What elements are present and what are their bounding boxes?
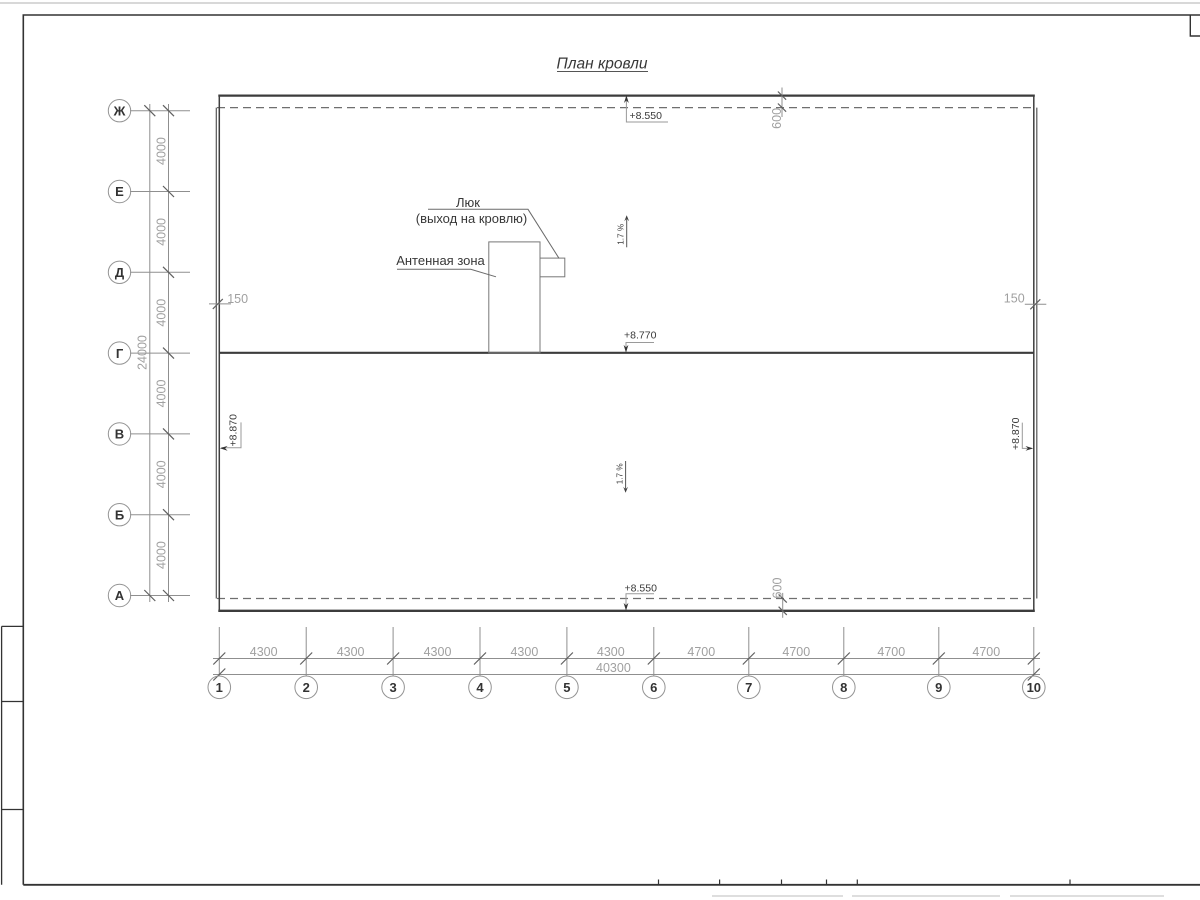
svg-text:4000: 4000 [155, 541, 169, 569]
svg-text:Люк: Люк [456, 195, 480, 210]
svg-text:4000: 4000 [155, 299, 169, 327]
svg-text:6: 6 [650, 680, 657, 695]
svg-text:150: 150 [227, 292, 248, 306]
svg-text:4000: 4000 [155, 218, 169, 246]
svg-text:Ж: Ж [113, 103, 126, 118]
svg-text:+8.550: +8.550 [625, 582, 658, 594]
svg-text:4700: 4700 [972, 645, 1000, 659]
svg-text:7: 7 [745, 680, 752, 695]
svg-text:4000: 4000 [155, 137, 169, 165]
svg-text:4300: 4300 [250, 645, 278, 659]
svg-text:+8.550: +8.550 [630, 110, 663, 122]
svg-text:24000: 24000 [136, 335, 150, 370]
svg-text:+8.770: +8.770 [624, 330, 657, 342]
svg-text:Е: Е [115, 184, 124, 199]
svg-text:4300: 4300 [510, 645, 538, 659]
svg-text:5: 5 [563, 680, 570, 695]
svg-text:4700: 4700 [782, 645, 810, 659]
svg-text:4300: 4300 [597, 645, 625, 659]
svg-text:8: 8 [840, 680, 847, 695]
svg-text:4300: 4300 [424, 645, 452, 659]
svg-text:9: 9 [935, 680, 942, 695]
svg-text:Г: Г [116, 346, 124, 361]
svg-text:План кровли: План кровли [557, 56, 648, 73]
svg-text:4: 4 [476, 680, 484, 695]
svg-text:4000: 4000 [155, 380, 169, 408]
svg-text:600: 600 [771, 578, 785, 599]
svg-text:Б: Б [115, 507, 124, 522]
svg-text:А: А [115, 588, 125, 603]
svg-text:4700: 4700 [877, 645, 905, 659]
svg-text:Антенная зона: Антенная зона [396, 253, 485, 268]
svg-text:4000: 4000 [155, 460, 169, 488]
svg-text:В: В [115, 427, 124, 442]
svg-text:1: 1 [216, 680, 223, 695]
svg-text:Д: Д [115, 265, 125, 280]
svg-text:(выход на кровлю): (выход на кровлю) [416, 211, 528, 226]
svg-text:4700: 4700 [687, 645, 715, 659]
svg-text:+8.870: +8.870 [1010, 417, 1022, 450]
svg-text:4300: 4300 [337, 645, 365, 659]
svg-text:+8.870: +8.870 [228, 414, 240, 447]
svg-text:150: 150 [1004, 291, 1025, 305]
svg-text:600: 600 [770, 108, 784, 129]
svg-text:10: 10 [1027, 680, 1041, 695]
svg-text:2: 2 [303, 680, 310, 695]
svg-text:3: 3 [389, 680, 396, 695]
svg-text:1.7 %: 1.7 % [616, 463, 625, 484]
svg-text:1.7 %: 1.7 % [617, 224, 626, 245]
svg-text:40300: 40300 [596, 661, 631, 675]
